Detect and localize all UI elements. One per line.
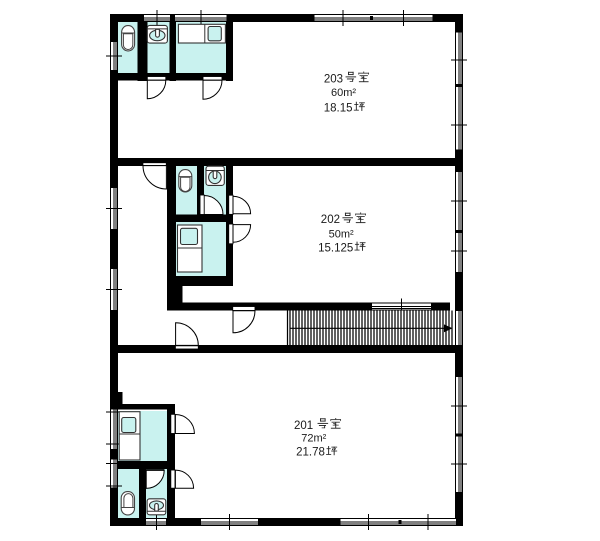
svg-text:202: 202 [321,214,340,226]
svg-text:15.125: 15.125 [318,242,353,254]
svg-text:201: 201 [294,420,313,432]
svg-text:50m²: 50m² [329,228,354,240]
svg-text:60m²: 60m² [331,87,356,99]
svg-text:18.15: 18.15 [324,102,353,114]
svg-text:21.78: 21.78 [296,447,325,459]
svg-text:203: 203 [324,73,343,85]
svg-text:72m²: 72m² [301,433,326,445]
